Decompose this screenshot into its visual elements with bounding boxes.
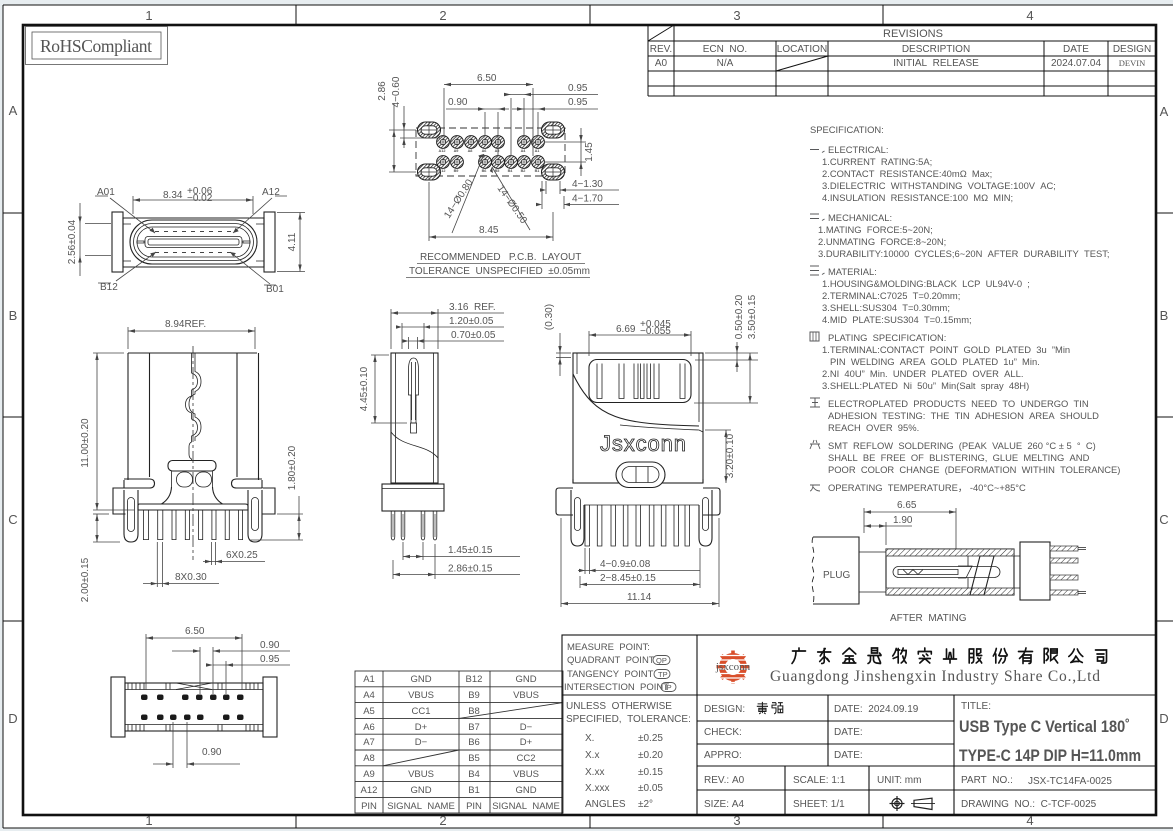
svg-text:D: D [8, 711, 17, 726]
svg-text:UNLESS OTHERWISE: UNLESS OTHERWISE [566, 701, 672, 712]
svg-text:D−: D− [520, 722, 533, 733]
svg-text:DATE:: DATE: [834, 750, 863, 761]
svg-text:8.34: 8.34 [163, 190, 183, 201]
svg-text:D−: D− [415, 737, 428, 748]
svg-text:D+: D+ [520, 737, 533, 748]
svg-text:DEVIN: DEVIN [1119, 58, 1145, 68]
svg-text:CC2: CC2 [516, 753, 535, 764]
svg-text:CHECK:: CHECK: [704, 727, 742, 738]
svg-text:4.11: 4.11 [287, 232, 298, 251]
svg-text:1.20±0.05: 1.20±0.05 [449, 316, 494, 327]
svg-text:SCALE: 1:1: SCALE: 1:1 [793, 775, 846, 786]
svg-text:VBUS: VBUS [513, 769, 539, 780]
svg-text:AFTER MATING: AFTER MATING [890, 613, 967, 624]
svg-text:DESCRIPTION: DESCRIPTION [902, 44, 970, 55]
svg-text:2.86: 2.86 [377, 81, 388, 101]
svg-text:PIN: PIN [466, 801, 482, 812]
svg-text:2024.07.04: 2024.07.04 [1051, 58, 1101, 69]
svg-text:A: A [1160, 104, 1169, 119]
svg-text:3.SHELL:SUS304 T=0.30mm;: 3.SHELL:SUS304 T=0.30mm; [822, 302, 950, 313]
svg-text:DATE: DATE [1063, 44, 1089, 55]
svg-text:1.80±0.20: 1.80±0.20 [287, 445, 298, 490]
svg-text:X.xx: X.xx [585, 767, 604, 778]
svg-text:X.: X. [585, 733, 594, 744]
svg-text:REACH OVER 95%.: REACH OVER 95%. [828, 422, 919, 433]
svg-text:DESIGN: DESIGN [1113, 44, 1151, 55]
svg-text:INTERSECTION POINT: INTERSECTION POINT [564, 682, 669, 693]
svg-text:PART NO.:: PART NO.: [961, 775, 1013, 786]
svg-text:11.00±0.20: 11.00±0.20 [80, 418, 91, 468]
svg-text:±0.25: ±0.25 [638, 733, 663, 744]
svg-text:A8: A8 [363, 753, 375, 764]
svg-text:DATE:: DATE: [834, 727, 863, 738]
svg-text:TYPE-C 14P DIP H=11.0mm: TYPE-C 14P DIP H=11.0mm [959, 747, 1141, 765]
svg-text:TITLE:: TITLE: [961, 701, 991, 712]
svg-text:A5: A5 [363, 706, 375, 717]
svg-text:1.TERMINAL:CONTACT POINT GOL: 1.TERMINAL:CONTACT POINT GOLD PLATED 3u … [822, 344, 1070, 355]
svg-text:A: A [9, 103, 18, 118]
svg-text:A12: A12 [439, 149, 446, 153]
svg-text:3.SHELL:PLATED Ni 50u” Min(: 3.SHELL:PLATED Ni 50u” Min(Salt spray 48… [822, 380, 1029, 391]
svg-text:4−0.60: 4−0.60 [391, 76, 402, 107]
svg-text:2: 2 [439, 813, 446, 828]
svg-text:1: 1 [145, 8, 152, 23]
svg-text:4−1.70: 4−1.70 [572, 194, 603, 205]
svg-text:B8: B8 [468, 706, 480, 717]
svg-text:A7: A7 [363, 737, 375, 748]
svg-text:ECN NO.: ECN NO. [703, 44, 747, 55]
svg-text:QUADRANT POINT: QUADRANT POINT [567, 655, 655, 666]
svg-text:TP: TP [658, 670, 668, 679]
svg-text:6.50: 6.50 [185, 626, 205, 637]
svg-text:6.69: 6.69 [616, 324, 636, 335]
svg-text:ELECTRICAL:: ELECTRICAL: [828, 144, 888, 155]
svg-text:A6: A6 [363, 722, 375, 733]
svg-text:±2°: ±2° [638, 799, 653, 810]
svg-text:2.CONTACT RESISTANCE:40mΩ Ma: 2.CONTACT RESISTANCE:40mΩ Max; [822, 168, 992, 179]
svg-text:B12: B12 [100, 282, 118, 293]
svg-text:A8: A8 [468, 149, 473, 153]
svg-text:6.65: 6.65 [897, 500, 917, 511]
svg-text:A9: A9 [454, 149, 459, 153]
svg-text:C: C [8, 512, 17, 527]
svg-text:ELECTROPLATED PRODUCTS NEED: ELECTROPLATED PRODUCTS NEED TO UNDERGO T… [828, 398, 1089, 409]
svg-text:1.HOUSING&MOLDING:BLACK LCP: 1.HOUSING&MOLDING:BLACK LCP UL94V-0 ; [822, 278, 1030, 289]
svg-text:2.NI 40U” Min. UNDER PLATE: 2.NI 40U” Min. UNDER PLATED OVER ALL. [822, 368, 1023, 379]
svg-text:GND: GND [410, 785, 431, 796]
svg-text:B: B [9, 308, 18, 323]
svg-text:1.CURRENT RATING:5A;: 1.CURRENT RATING:5A; [822, 156, 932, 167]
svg-text:4−0.9±0.08: 4−0.9±0.08 [600, 559, 651, 570]
svg-text:SHALL BE FREE OF BLISTERIN: SHALL BE FREE OF BLISTERING, GLUE MELTIN… [828, 452, 1090, 463]
svg-text:±0.20: ±0.20 [638, 750, 663, 761]
svg-text:6X0.25: 6X0.25 [226, 550, 258, 561]
svg-text:3: 3 [733, 8, 740, 23]
svg-text:VBUS: VBUS [513, 690, 539, 701]
svg-text:2.TERMINAL:C7025 T=0.20mm;: 2.TERMINAL:C7025 T=0.20mm; [822, 290, 960, 301]
svg-text:3.DURABILITY:10000 CYCLES;6~2: 3.DURABILITY:10000 CYCLES;6~20N AFTER DU… [818, 248, 1110, 259]
svg-text:4.MID PLATE:SUS304 T=0.15mm;: 4.MID PLATE:SUS304 T=0.15mm; [822, 314, 972, 325]
svg-text:0.95: 0.95 [568, 97, 588, 108]
svg-text:DRAWING NO.: C-TCF-0025: DRAWING NO.: C-TCF-0025 [961, 799, 1097, 810]
svg-text:A0: A0 [655, 58, 668, 69]
svg-text:8.94REF.: 8.94REF. [165, 319, 206, 330]
svg-text:ADHESION TESTING: THE TIN: ADHESION TESTING: THE TIN ADHESION AREA … [828, 410, 1099, 421]
svg-text:IP: IP [665, 683, 672, 692]
svg-text:SIGNAL NAME: SIGNAL NAME [492, 801, 560, 812]
svg-text:SPECIFIED, TOLERANCE:: SPECIFIED, TOLERANCE: [566, 714, 691, 725]
svg-text:PIN: PIN [361, 801, 377, 812]
svg-text:SIGNAL NAME: SIGNAL NAME [387, 801, 455, 812]
svg-text:ANGLES: ANGLES [585, 799, 626, 810]
svg-text:2−8.45±0.15: 2−8.45±0.15 [600, 573, 656, 584]
svg-text:B7: B7 [468, 722, 480, 733]
svg-text:Guangdong Jinshengxin Industry: Guangdong Jinshengxin Industry Share Co.… [770, 668, 1100, 685]
svg-text:8X0.30: 8X0.30 [175, 572, 207, 583]
svg-text:REVISIONS: REVISIONS [883, 28, 943, 40]
svg-text:B2: B2 [521, 169, 526, 173]
svg-text:0.90: 0.90 [260, 640, 280, 651]
svg-text:(0.30): (0.30) [544, 304, 555, 330]
svg-text:2.86±0.15: 2.86±0.15 [448, 564, 493, 575]
svg-text:B5: B5 [468, 753, 480, 764]
svg-text:PLUG: PLUG [823, 570, 850, 581]
svg-text:B9: B9 [454, 169, 459, 173]
svg-text:4.INSULATION RESISTANCE:100: 4.INSULATION RESISTANCE:100 MΩ MIN; [822, 192, 1013, 203]
svg-text:B9: B9 [468, 690, 480, 701]
svg-text:0.95: 0.95 [260, 654, 280, 665]
svg-text:SPECIFICATION:: SPECIFICATION: [810, 124, 884, 135]
svg-text:X.xxx: X.xxx [585, 783, 609, 794]
svg-text:A6: A6 [482, 149, 487, 153]
svg-text:X.x: X.x [585, 750, 599, 761]
svg-text:D: D [1159, 711, 1168, 726]
svg-text:A1: A1 [535, 149, 540, 153]
svg-text:REV.: REV. [650, 44, 672, 55]
svg-text:B: B [1160, 308, 1169, 323]
svg-text:SIZE: A4: SIZE: A4 [704, 799, 744, 810]
svg-text:0.50±0.20: 0.50±0.20 [734, 294, 745, 339]
svg-text:MATERIAL:: MATERIAL: [828, 266, 877, 277]
svg-text:1.MATING FORCE:5~20N;: 1.MATING FORCE:5~20N; [818, 224, 933, 235]
svg-text:SMT REFLOW SOLDERING (PEAK: SMT REFLOW SOLDERING (PEAK VALUE 260 °C … [828, 440, 1096, 451]
svg-text:B01: B01 [266, 284, 284, 295]
svg-text:B6: B6 [468, 737, 480, 748]
svg-text:6.50: 6.50 [477, 73, 497, 84]
svg-text:RECOMMENDED P.C.B. LAYOUT: RECOMMENDED P.C.B. LAYOUT [420, 252, 581, 263]
svg-text:3.50±0.15: 3.50±0.15 [747, 294, 758, 339]
svg-text:PIN WELDING AREA GOLD PLAT: PIN WELDING AREA GOLD PLATED 1u” Min. [830, 356, 1040, 367]
svg-text:4.45±0.10: 4.45±0.10 [359, 366, 370, 411]
svg-text:1.90: 1.90 [893, 515, 913, 526]
svg-text:1.45±0.15: 1.45±0.15 [448, 545, 493, 556]
svg-text:CC1: CC1 [411, 706, 430, 717]
svg-text:REV.: A0: REV.: A0 [704, 775, 745, 786]
svg-text:±0.05: ±0.05 [638, 783, 663, 794]
svg-text:QP: QP [656, 656, 667, 665]
svg-text:SHEET: 1/1: SHEET: 1/1 [793, 799, 845, 810]
svg-text:jsxconn: jsxconn [715, 661, 751, 673]
svg-text:DATE: 2024.09.19: DATE: 2024.09.19 [834, 704, 919, 715]
svg-text:11.14: 11.14 [627, 592, 652, 603]
svg-text:4−1.30: 4−1.30 [572, 179, 603, 190]
svg-text:3.16 REF.: 3.16 REF. [449, 302, 496, 313]
svg-text:4: 4 [1026, 8, 1033, 23]
svg-text:MEASURE POINT:: MEASURE POINT: [567, 642, 650, 653]
svg-text:2.UNMATING FORCE:8~20N;: 2.UNMATING FORCE:8~20N; [818, 236, 946, 247]
svg-text:A5: A5 [495, 149, 500, 153]
svg-text:A9: A9 [363, 769, 375, 780]
svg-text:D+: D+ [415, 722, 428, 733]
svg-text:GND: GND [410, 674, 431, 685]
svg-text:A1: A1 [363, 674, 375, 685]
svg-text:1: 1 [145, 813, 152, 828]
svg-text:±0.15: ±0.15 [638, 767, 663, 778]
svg-text:B12: B12 [439, 169, 446, 173]
svg-text:2.56±0.04: 2.56±0.04 [67, 219, 78, 264]
svg-text:MECHANICAL:: MECHANICAL: [828, 212, 892, 223]
svg-text:0.90: 0.90 [448, 97, 468, 108]
svg-text:JSX-TC14FA-0025: JSX-TC14FA-0025 [1028, 776, 1112, 787]
svg-text:PLATING SPECIFICATION:: PLATING SPECIFICATION: [828, 332, 946, 343]
svg-text:VBUS: VBUS [408, 769, 434, 780]
svg-text:0.90: 0.90 [202, 747, 222, 758]
svg-text:2.00±0.15: 2.00±0.15 [80, 557, 91, 602]
svg-text:−0.055: −0.055 [640, 326, 671, 337]
svg-text:B12: B12 [466, 674, 483, 685]
svg-text:3.20±0.10: 3.20±0.10 [725, 433, 736, 478]
svg-text:GND: GND [515, 674, 536, 685]
svg-text:USB Type C Vertical 180˚: USB Type C Vertical 180˚ [959, 718, 1130, 736]
svg-text:VBUS: VBUS [408, 690, 434, 701]
svg-text:LOCATION: LOCATION [777, 44, 827, 55]
svg-text:B6: B6 [482, 169, 487, 173]
svg-text:N/A: N/A [717, 58, 734, 69]
svg-text:DESIGN:: DESIGN: [704, 704, 745, 715]
svg-text:GND: GND [515, 785, 536, 796]
svg-text:UNIT: mm: UNIT: mm [877, 775, 921, 786]
svg-text:INITIAL RELEASE: INITIAL RELEASE [893, 58, 979, 69]
svg-text:A4: A4 [363, 690, 375, 701]
svg-text:B4: B4 [468, 769, 480, 780]
svg-text:POOR COLOR CHANGE (DEFORMAT: POOR COLOR CHANGE (DEFORMATION WITHIN TO… [828, 464, 1120, 475]
svg-text:B1: B1 [535, 169, 540, 173]
svg-text:C: C [1159, 512, 1168, 527]
svg-text:TOLERANCE UNSPECIFIED ±0.05m: TOLERANCE UNSPECIFIED ±0.05mm [409, 266, 590, 277]
svg-text:OPERATING TEMPERATURE， -40°C~: OPERATING TEMPERATURE， -40°C~+85°C [828, 482, 1026, 493]
svg-text:B1: B1 [468, 785, 480, 796]
svg-text:1.45: 1.45 [584, 142, 595, 162]
svg-text:−0.02: −0.02 [187, 193, 213, 204]
svg-text:Jsxconn: Jsxconn [600, 431, 686, 456]
svg-text:TANGENCY POINT: TANGENCY POINT [567, 669, 654, 680]
svg-text:3.DIELECTRIC WITHSTANDING VO: 3.DIELECTRIC WITHSTANDING VOLTAGE:100V A… [822, 180, 1056, 191]
svg-text:A12: A12 [361, 785, 378, 796]
svg-text:0.70±0.05: 0.70±0.05 [451, 330, 496, 341]
svg-text:APPRO:: APPRO: [704, 750, 742, 761]
svg-text:RoHSCompliant: RoHSCompliant [40, 36, 152, 56]
svg-text:2: 2 [439, 8, 446, 23]
svg-text:0.95: 0.95 [568, 83, 588, 94]
svg-text:8.45: 8.45 [479, 225, 499, 236]
